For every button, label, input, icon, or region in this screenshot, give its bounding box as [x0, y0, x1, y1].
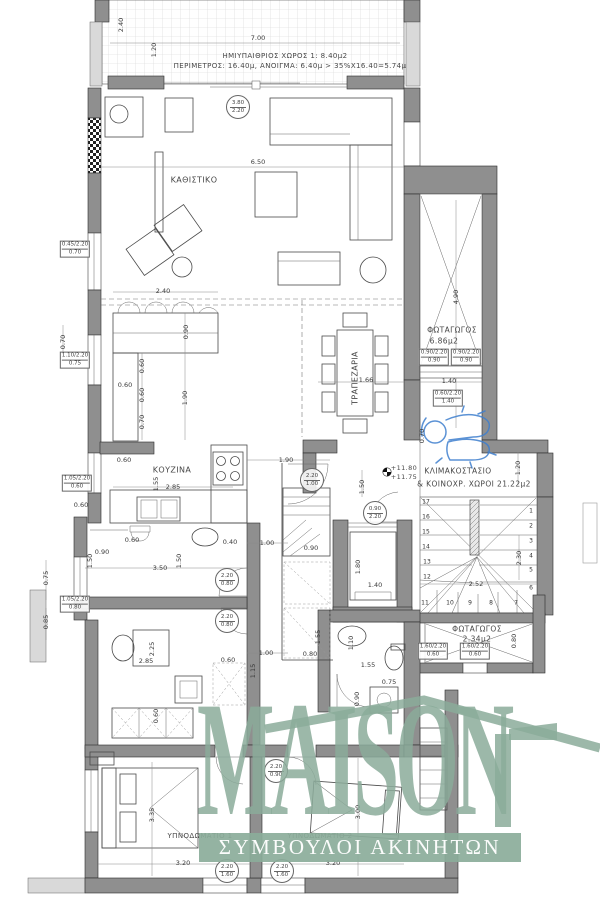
- armchair: [175, 676, 202, 703]
- toilet: [130, 526, 150, 541]
- kitchen: [110, 302, 247, 523]
- coffee-table: [255, 172, 297, 217]
- washbasin: [338, 626, 366, 646]
- desk: [133, 630, 169, 666]
- door-arc: [221, 608, 247, 634]
- balcony-pier-left: [108, 76, 164, 89]
- closet: [213, 663, 245, 705]
- pillow: [382, 790, 399, 835]
- side-unit: [165, 98, 193, 132]
- level-marker: [383, 468, 391, 476]
- window: [88, 335, 101, 385]
- living-furniture: [101, 97, 404, 437]
- window: [203, 878, 247, 893]
- bathroom-2: [337, 626, 405, 713]
- dining-furniture: [322, 313, 388, 433]
- desk-chair: [112, 635, 134, 661]
- floorplan-page: ΗΜΙΥΠΑΙΘΡΙΟΣ ΧΩΡΟΣ 1: 8.40μ2ΠΕΡΙΜΕΤΡΟΣ: …: [0, 0, 600, 900]
- stove: [213, 452, 243, 485]
- office-room: [112, 630, 245, 738]
- pillow: [120, 774, 136, 804]
- door-arc: [219, 568, 247, 596]
- bathroom-1: [90, 526, 247, 596]
- partition-walls: [82, 380, 458, 878]
- entry-door-arc: [370, 492, 398, 522]
- window: [74, 557, 87, 601]
- bedroom-2: [288, 728, 447, 839]
- side-table: [360, 257, 386, 283]
- window: [88, 453, 101, 493]
- lightwell-1: [404, 88, 497, 440]
- window: [85, 770, 98, 832]
- bar-stools: [118, 302, 218, 313]
- stair-newel-wall: [470, 500, 479, 555]
- kitchen-sink: [137, 497, 180, 521]
- chimney-shaft: [88, 118, 101, 173]
- window: [88, 233, 101, 290]
- kitchen-counter: [110, 490, 247, 523]
- door-arc: [216, 757, 243, 784]
- sofa: [270, 98, 392, 145]
- pillow: [120, 812, 136, 842]
- armchair: [126, 229, 174, 276]
- balcony: [90, 0, 420, 89]
- armchair: [154, 205, 202, 252]
- dining-table: [337, 330, 373, 416]
- lightwell-door: [463, 663, 487, 673]
- door-arc: [337, 674, 370, 707]
- watermark-roof: [265, 700, 600, 827]
- bedroom-1: [90, 752, 243, 848]
- loveseat: [278, 252, 340, 285]
- door-arc: [288, 757, 316, 785]
- closet: [420, 728, 447, 810]
- bed: [310, 781, 401, 839]
- floorplan-drawing: [0, 0, 600, 900]
- plant: [172, 257, 192, 277]
- elevator-car: [350, 532, 396, 600]
- elevator: [333, 520, 412, 622]
- washbasin: [192, 528, 218, 546]
- balcony-pier-right: [347, 76, 404, 89]
- bottom-wall: [28, 878, 458, 893]
- toilet: [385, 646, 403, 670]
- window: [404, 122, 420, 166]
- window: [261, 878, 305, 893]
